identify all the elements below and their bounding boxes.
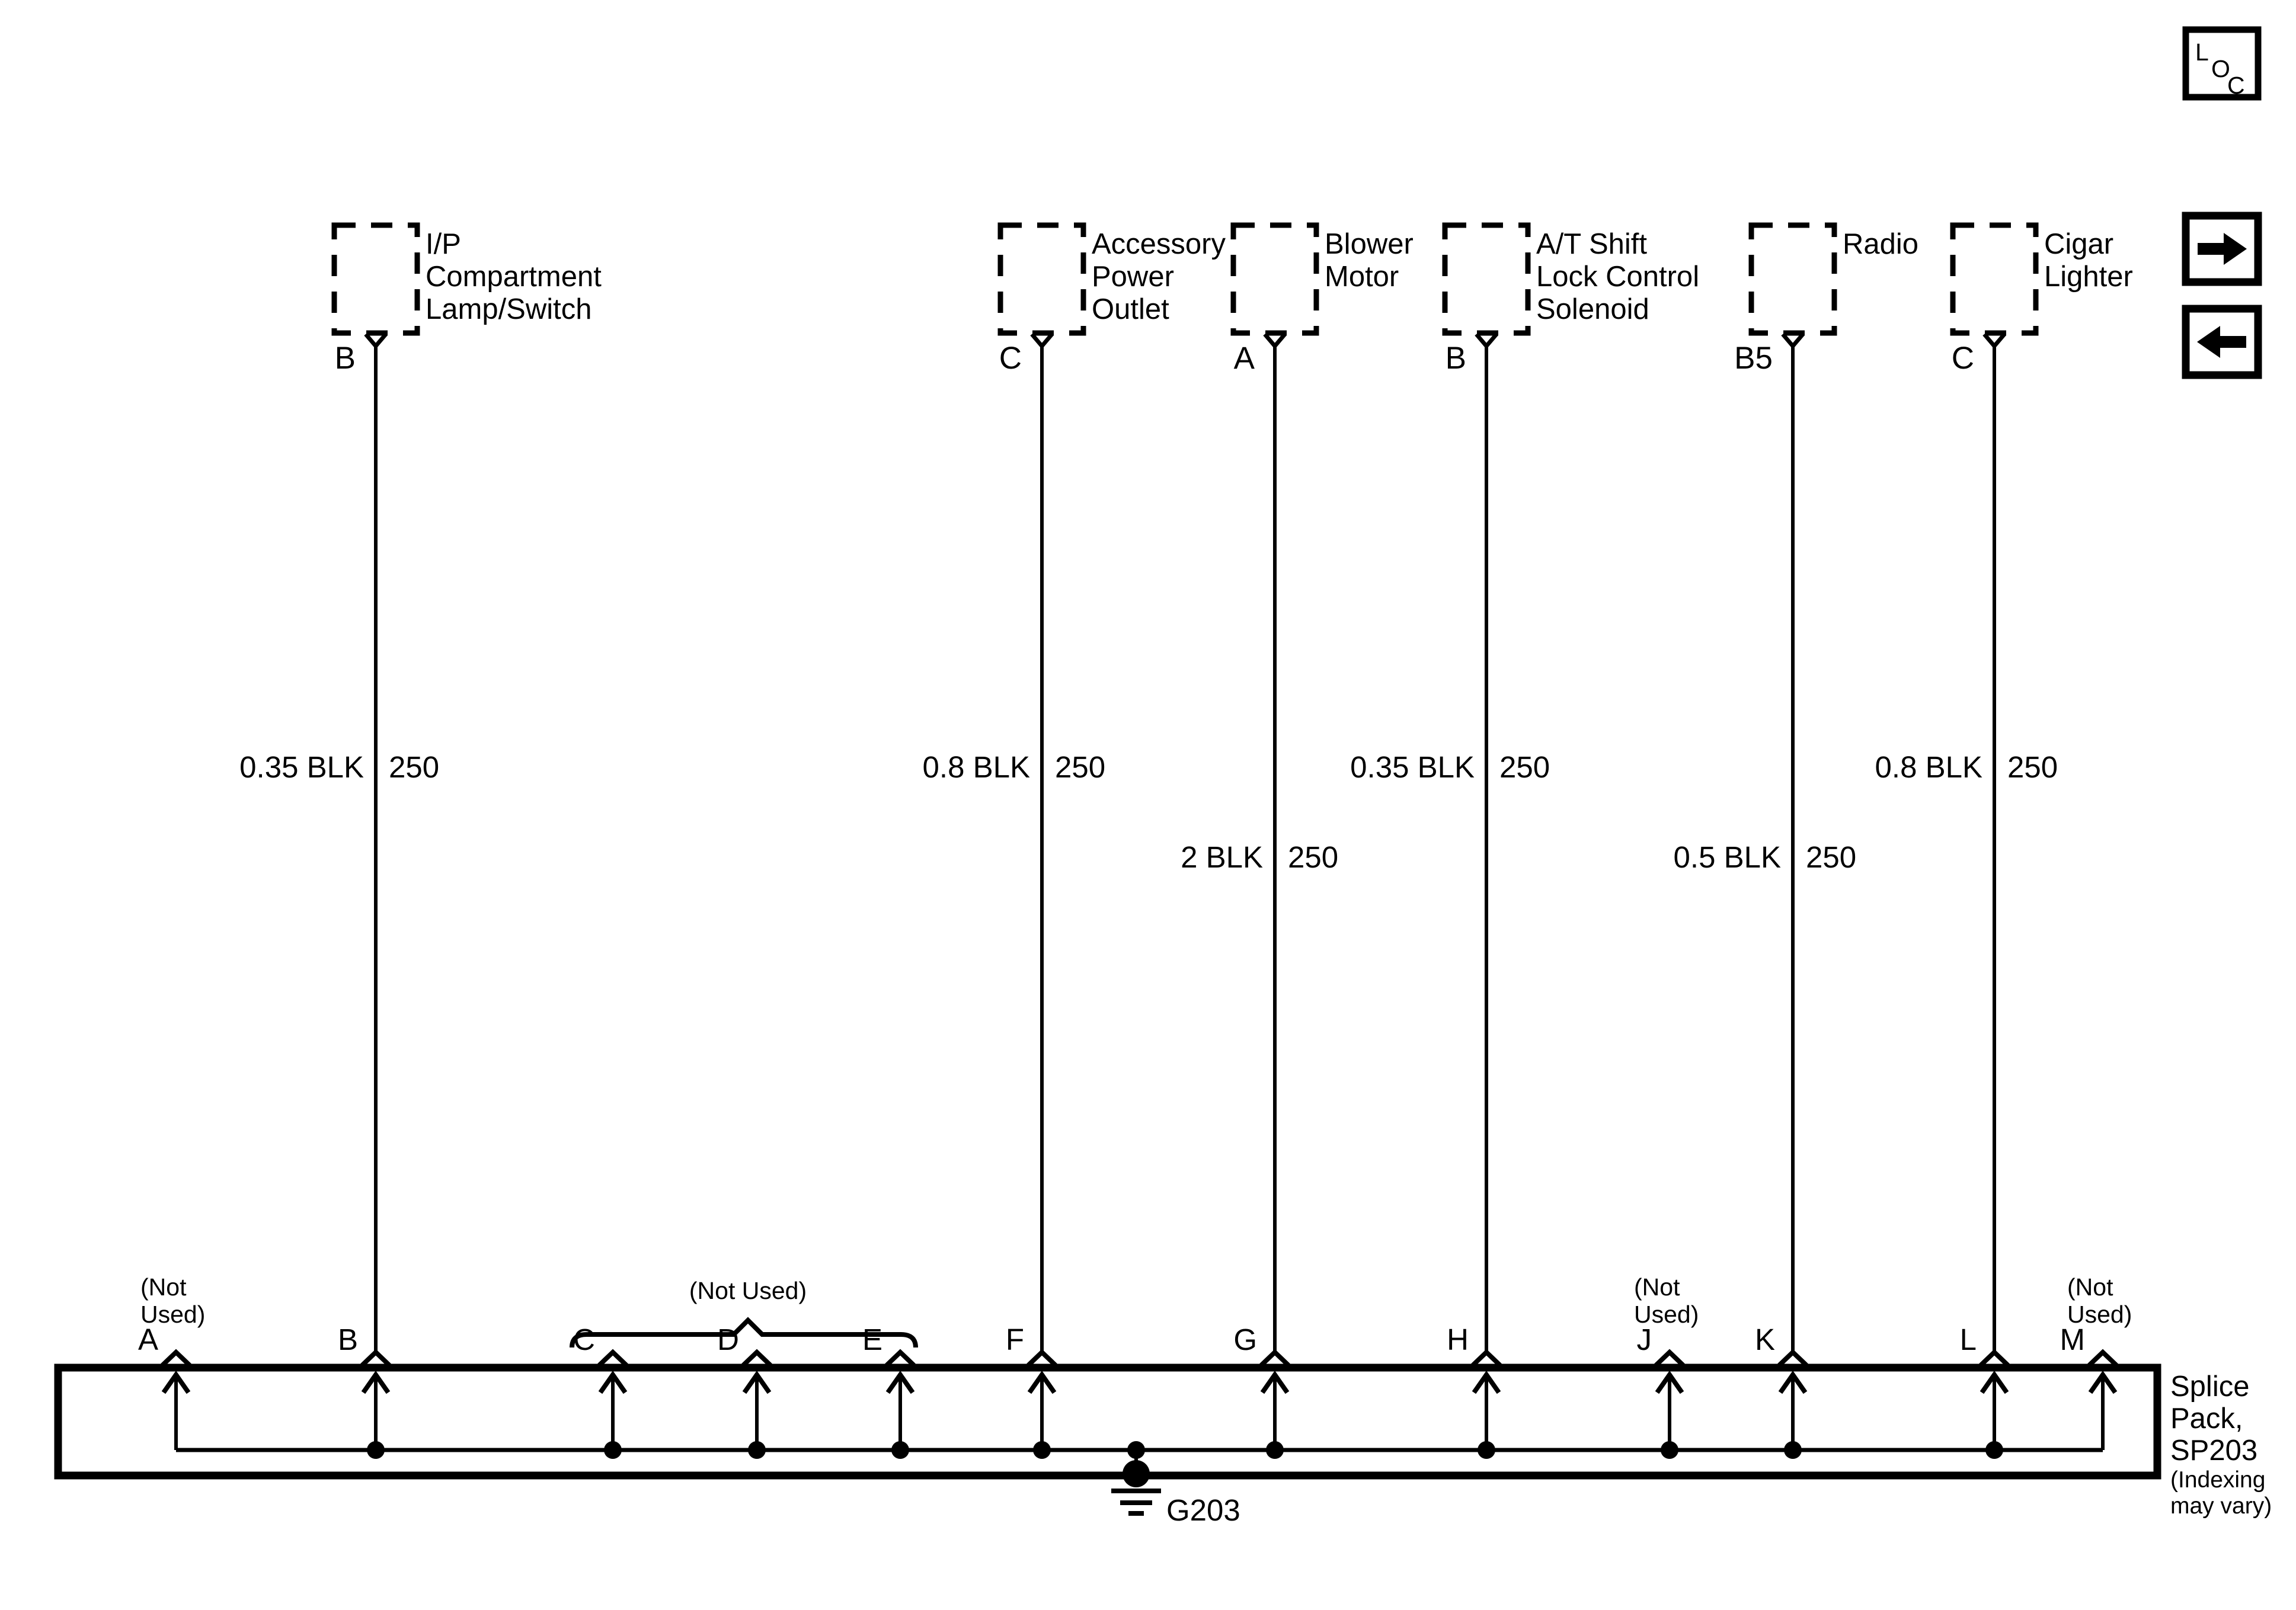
wire-size-label: 2 BLK xyxy=(1181,840,1263,874)
pin-chevron-icon xyxy=(162,1352,190,1365)
pin-chevron-icon xyxy=(1656,1352,1683,1365)
component-label: Lamp/Switch xyxy=(426,293,592,325)
component-label: Motor xyxy=(1325,261,1399,293)
pin-label: B xyxy=(1446,341,1466,376)
pin-chevron-icon xyxy=(1473,1352,1500,1365)
component-label: Radio xyxy=(1843,228,1918,260)
wire-circuit-label: 250 xyxy=(1806,840,1856,874)
wire-size-label: 0.5 BLK xyxy=(1674,840,1781,874)
terminal-y-icon xyxy=(1032,334,1052,346)
terminal-y-icon xyxy=(1984,334,2004,346)
wire-circuit-label: 250 xyxy=(2007,750,2058,784)
pin-label: A xyxy=(1234,341,1255,376)
connector-box xyxy=(1445,225,1528,333)
wire-size-label: 0.35 BLK xyxy=(1350,750,1475,784)
svg-text:Used): Used) xyxy=(2067,1301,2132,1328)
svg-text:Used): Used) xyxy=(140,1301,205,1328)
loc-letter-l: L xyxy=(2195,39,2209,66)
pin-chevron-icon xyxy=(1779,1352,1806,1365)
terminal-y-icon xyxy=(366,334,386,346)
component-at-shift-lock-control-solenoid: A/T Shift Lock Control Solenoid B 0.35 B… xyxy=(1350,225,1699,1353)
svg-text:(Indexing: (Indexing xyxy=(2170,1467,2265,1493)
pin-label: C xyxy=(999,341,1022,376)
svg-text:may vary): may vary) xyxy=(2170,1493,2272,1519)
splice-pin-b: B xyxy=(338,1323,358,1356)
pin-label: B5 xyxy=(1734,341,1773,376)
splice-pin-l: L xyxy=(1960,1323,1977,1356)
wire-circuit-label: 250 xyxy=(1499,750,1550,784)
component-label: Lock Control xyxy=(1536,261,1699,293)
pin-chevron-icon xyxy=(743,1352,770,1365)
component-label: Blower xyxy=(1325,228,1414,260)
component-label: Accessory xyxy=(1092,228,1226,260)
splice-pin-e: E xyxy=(862,1323,882,1356)
connector-box xyxy=(334,225,417,333)
splice-pack-box xyxy=(58,1368,2157,1475)
svg-text:(Not: (Not xyxy=(2067,1273,2113,1301)
svg-text:(Not: (Not xyxy=(140,1273,187,1301)
connector-box xyxy=(1953,225,2036,333)
pin-chevron-icon xyxy=(887,1352,914,1365)
component-radio: Radio B5 0.5 BLK 250 xyxy=(1674,225,1919,1353)
pin-label: C xyxy=(1952,341,1974,376)
pin-chevron-icon xyxy=(1028,1352,1056,1365)
pin-chevron-icon xyxy=(1981,1352,2008,1365)
component-label: Outlet xyxy=(1092,293,1169,325)
component-label: Lighter xyxy=(2044,261,2133,293)
splice-pack-label: Splice Pack, SP203 (Indexing may vary) xyxy=(2170,1371,2272,1519)
splice-internal-stubs xyxy=(164,1375,2115,1450)
svg-text:(Not: (Not xyxy=(1634,1273,1680,1301)
component-cigar-lighter: Cigar Lighter C 0.8 BLK 250 xyxy=(1875,225,2133,1353)
terminal-y-icon xyxy=(1265,334,1285,346)
not-used-note-a: (Not Used) xyxy=(140,1273,205,1328)
svg-text:Splice: Splice xyxy=(2170,1371,2249,1403)
component-ip-compartment-lamp-switch: I/P Compartment Lamp/Switch B 0.35 BLK 2… xyxy=(239,225,602,1353)
terminal-y-icon xyxy=(1476,334,1496,346)
pin-chevron-icon xyxy=(1261,1352,1288,1365)
not-used-group-label: (Not Used) xyxy=(689,1277,807,1304)
splice-pin-f: F xyxy=(1006,1323,1024,1356)
not-used-note-m: (Not Used) xyxy=(2067,1273,2132,1328)
wire-circuit-label: 250 xyxy=(1288,840,1338,874)
next-page-button[interactable] xyxy=(2186,216,2258,282)
wiring-diagram-page: I/P Compartment Lamp/Switch B 0.35 BLK 2… xyxy=(0,0,2296,1610)
component-label: Cigar xyxy=(2044,228,2113,260)
pin-chevron-icon xyxy=(362,1352,389,1365)
wire-size-label: 0.8 BLK xyxy=(923,750,1030,784)
connector-box xyxy=(1233,225,1316,333)
wire-size-label: 0.8 BLK xyxy=(1875,750,1982,784)
right-arrow-icon xyxy=(2198,233,2247,265)
component-label: I/P xyxy=(426,228,461,260)
svg-text:SP203: SP203 xyxy=(2170,1435,2257,1467)
component-label: Compartment xyxy=(426,261,602,293)
pin-chevron-icon xyxy=(599,1352,626,1365)
terminal-y-icon xyxy=(1783,334,1803,346)
loc-legend-button[interactable]: L O C xyxy=(2186,30,2258,99)
component-label: Solenoid xyxy=(1536,293,1649,325)
splice-pin-d: D xyxy=(717,1323,739,1356)
svg-text:Pack,: Pack, xyxy=(2170,1403,2243,1435)
wire-size-label: 0.35 BLK xyxy=(239,750,364,784)
splice-pin-h: H xyxy=(1447,1323,1469,1356)
previous-page-button[interactable] xyxy=(2186,309,2258,375)
loc-letter-c: C xyxy=(2227,72,2245,99)
pin-chevron-icon xyxy=(2089,1352,2116,1365)
ground-g203: G203 xyxy=(1111,1450,1240,1527)
component-label: A/T Shift xyxy=(1536,228,1647,260)
component-label: Power xyxy=(1092,261,1174,293)
pin-label: B xyxy=(335,341,356,376)
wire-circuit-label: 250 xyxy=(389,750,439,784)
connector-box xyxy=(1000,225,1083,333)
component-blower-motor: Blower Motor A 2 BLK 250 xyxy=(1181,225,1414,1353)
splice-pack-sp203: A B C D E F G H J K L M (Not Used) (Not … xyxy=(58,1273,2272,1527)
ground-label: G203 xyxy=(1166,1493,1240,1527)
left-arrow-icon xyxy=(2197,326,2246,358)
splice-pin-g: G xyxy=(1233,1323,1257,1356)
splice-pin-k: K xyxy=(1755,1323,1775,1356)
connector-box xyxy=(1751,225,1834,333)
component-accessory-power-outlet: Accessory Power Outlet C 0.8 BLK 250 xyxy=(923,225,1226,1353)
wire-circuit-label: 250 xyxy=(1055,750,1105,784)
svg-text:Used): Used) xyxy=(1634,1301,1699,1328)
not-used-note-j: (Not Used) xyxy=(1634,1273,1699,1328)
